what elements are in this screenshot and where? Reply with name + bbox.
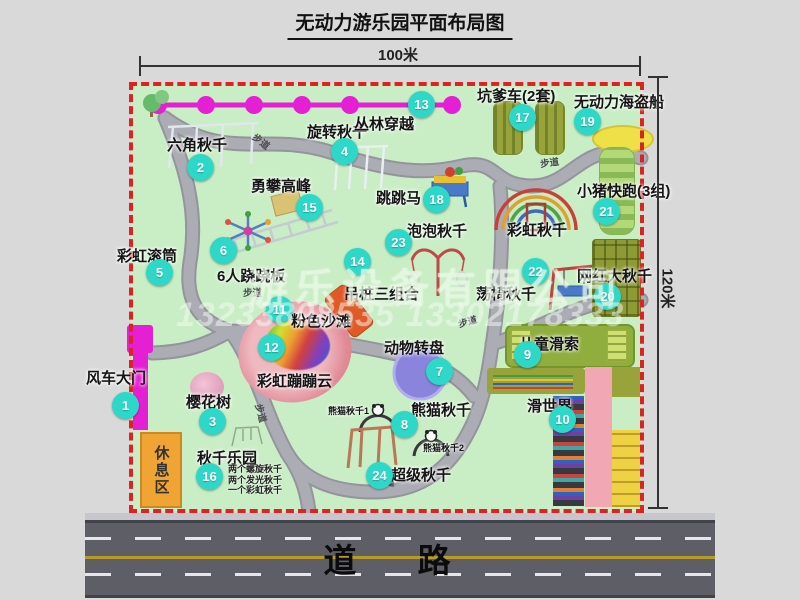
attraction-label-15: 勇攀高峰: [251, 175, 311, 196]
marker-16: 16: [196, 463, 223, 490]
rest-area-label: 休息区: [151, 445, 172, 496]
pit-cart-block-2: [535, 101, 565, 155]
slide-world-wavy-slide: [612, 430, 640, 507]
marker-15: 15: [296, 194, 323, 221]
slide-world-top-bar: [487, 368, 585, 394]
rest-area-box: 休息区: [140, 432, 182, 508]
marker-4: 4: [331, 138, 358, 165]
marker-21: 21: [593, 198, 620, 225]
attraction-label-17: 坑爹车(2套): [477, 85, 555, 106]
marker-24: 24: [366, 462, 393, 489]
attraction-label-23: 泡泡秋千: [407, 220, 467, 241]
attraction-label-8: 熊猫秋千: [411, 399, 471, 420]
width-dimension-line: [140, 65, 640, 67]
marker-17: 17: [509, 104, 536, 131]
height-dim-tick-top: [648, 76, 668, 78]
swing-park-notes: 两个螺旋秋千 两个发光秋千 一个彩虹秋千: [228, 464, 282, 496]
swing-park-note-3: 一个彩虹秋千: [228, 485, 282, 496]
swing-park-note-2: 两个发光秋千: [228, 475, 282, 486]
attraction-label-7: 动物转盘: [384, 337, 444, 358]
marker-8: 8: [391, 411, 418, 438]
marker-6: 6: [210, 237, 237, 264]
road-shoulder: [85, 513, 715, 520]
attraction-label-24: 超级秋千: [391, 464, 451, 485]
rainbow-swing-label: 彩虹秋千: [507, 219, 567, 240]
marker-5: 5: [146, 259, 173, 286]
park-plan-page: 无动力游乐园平面布局图 100米 120米: [0, 0, 800, 600]
swing-park-note-1: 两个螺旋秋千: [228, 464, 282, 475]
width-dimension-label: 100米: [378, 44, 418, 65]
slide-world-corner-block: [612, 367, 640, 397]
height-dimension-line: [657, 77, 659, 508]
width-dim-tick-left: [139, 56, 141, 76]
marker-1: 1: [112, 392, 139, 419]
marker-3: 3: [199, 408, 226, 435]
slide-world-pink-tower: [585, 367, 612, 507]
road: 道 路: [85, 520, 715, 598]
height-dim-tick-bottom: [648, 507, 668, 509]
attraction-sublabel-8-2: 熊猫秋千2: [423, 441, 464, 454]
windmill-gate-post: [133, 350, 148, 430]
height-dimension-label: 120米: [658, 268, 679, 308]
marker-12: 12: [258, 334, 285, 361]
marker-19: 19: [574, 108, 601, 135]
attraction-label-18: 跳跳马: [376, 187, 421, 208]
marker-18: 18: [423, 186, 450, 213]
road-label: 道 路: [323, 534, 476, 582]
width-dim-tick-right: [639, 56, 641, 76]
marker-2: 2: [187, 154, 214, 181]
marker-7: 7: [426, 358, 453, 385]
attraction-label-13: 丛林穿越: [354, 113, 414, 134]
marker-10: 10: [549, 406, 576, 433]
marker-9: 9: [514, 341, 541, 368]
marker-23: 23: [385, 229, 412, 256]
page-title: 无动力游乐园平面布局图: [287, 8, 512, 40]
walkway-label: 步道: [539, 154, 560, 171]
windmill-gate-icon: [127, 325, 153, 353]
attraction-sublabel-8-1: 熊猫秋千1: [328, 404, 369, 417]
watermark-phone: 13233808535 13302178333: [176, 296, 624, 335]
attraction-label-2: 六角秋千: [167, 134, 227, 155]
attraction-label-1: 风车大门: [86, 367, 146, 388]
attraction-label-12: 彩虹蹦蹦云: [257, 370, 332, 391]
slide-world-stripes: [493, 373, 573, 389]
marker-13: 13: [408, 91, 435, 118]
